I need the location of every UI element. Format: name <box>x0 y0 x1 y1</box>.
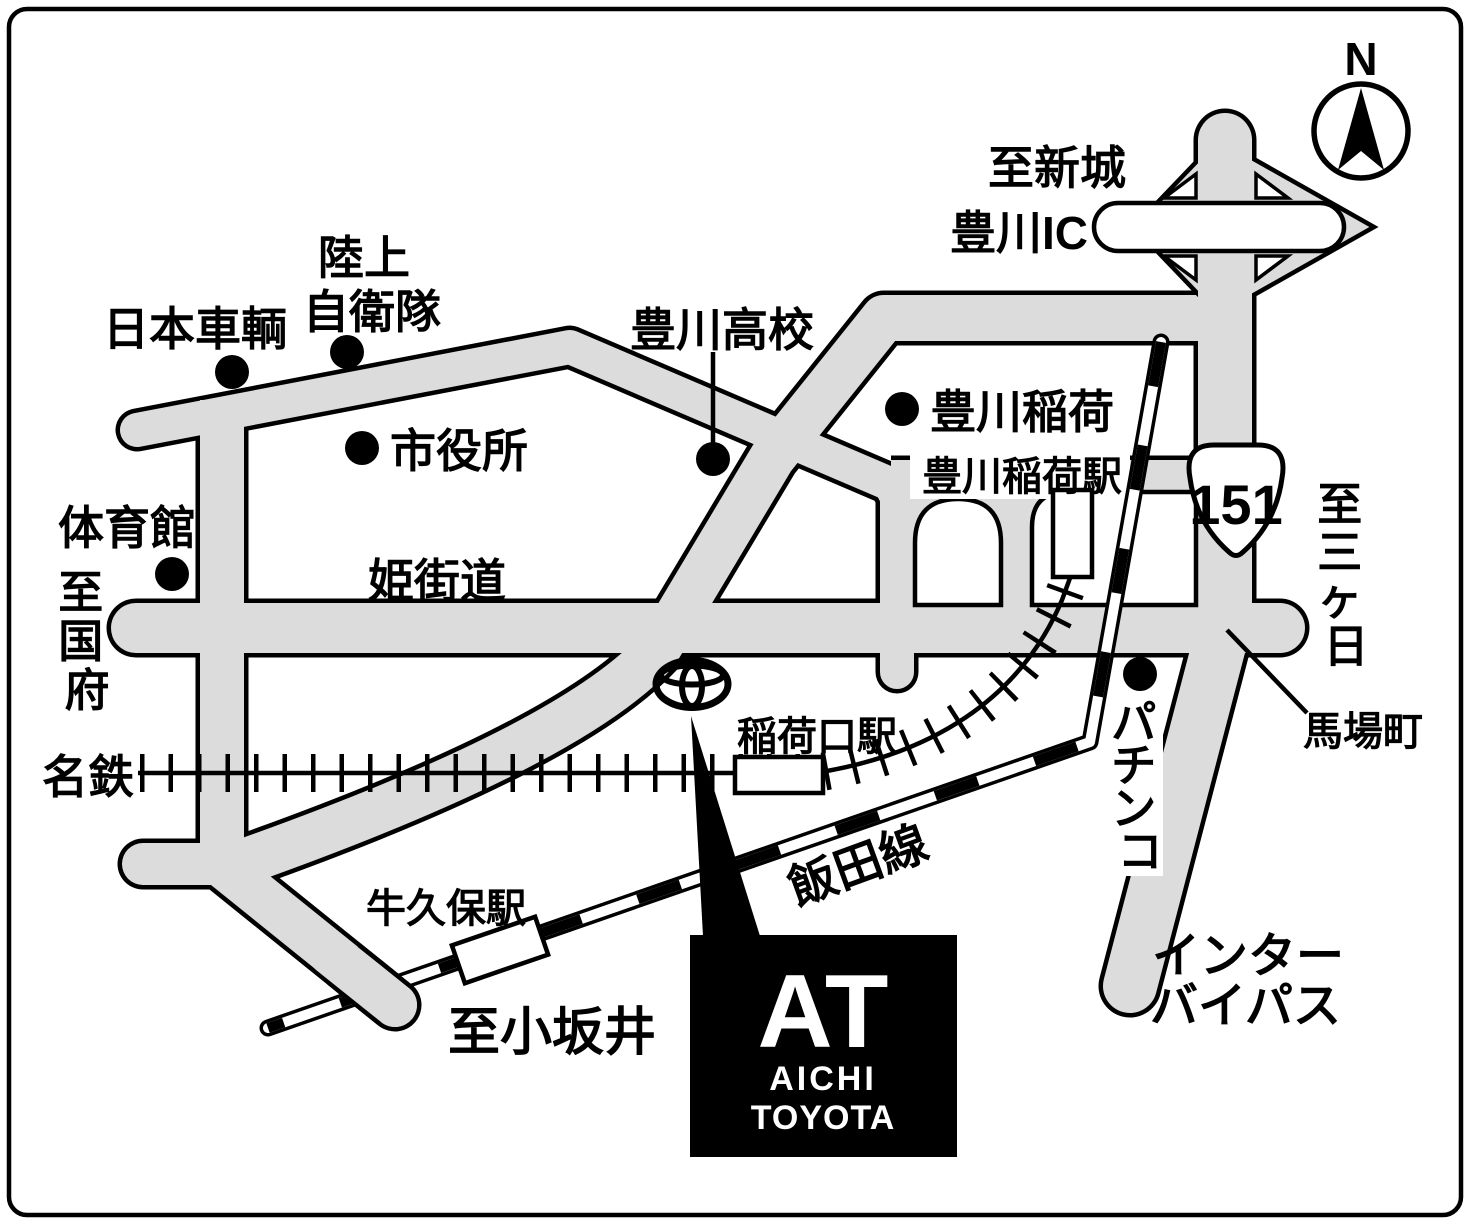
dealer-name-line1: AICHI <box>769 1060 877 1098</box>
label-to-kokufu: 至 国 府 <box>58 567 116 716</box>
station-toyokawa-inari <box>1053 490 1092 577</box>
label-ushikubo-station: 牛久保駅 <box>366 887 526 931</box>
label-to-mikkabi: 至 三 ヶ 日 <box>1317 479 1375 672</box>
label-toyokawa-inari-station: 豊川稲荷駅 <box>922 455 1122 499</box>
label-inter-bypass-line2: バイパス <box>1150 980 1341 1033</box>
route-badge-number: 151 <box>1189 473 1282 536</box>
poi-dot-toyokawa-koko <box>696 442 730 476</box>
label-toyokawa-koko: 豊川高校 <box>630 304 814 356</box>
dealer-monogram: AT <box>758 954 889 1070</box>
label-taiikukan: 体育館 <box>58 502 196 554</box>
label-toyokawa-ic: 豊川IC <box>950 207 1088 259</box>
label-hime-kaido: 姫街道 <box>368 555 506 607</box>
label-rikujo-line1: 陸上 <box>318 232 410 284</box>
label-inariguchi-station: 稲荷口駅 <box>737 715 897 759</box>
label-pachinko: パ チ ン コ <box>1111 697 1169 877</box>
label-baba-cho: 馬場町 <box>1303 710 1423 754</box>
poi-dot-pachinko <box>1123 657 1157 691</box>
poi-dot-taiikukan <box>155 557 189 591</box>
dealer-logo-box: AT AICHI TOYOTA <box>690 935 957 1157</box>
poi-dot-shiyakusho <box>345 431 379 465</box>
label-to-shinshiro: 至新城 <box>988 142 1126 194</box>
label-inter-bypass-line1: インター <box>1152 930 1344 983</box>
compass-north-label: N <box>1344 33 1377 85</box>
poi-dot-nippon-sharyo <box>215 355 249 389</box>
station-inariguchi <box>735 757 823 793</box>
label-to-kozakai: 至小坂井 <box>448 1004 656 1062</box>
label-shiyakusho: 市役所 <box>390 425 528 477</box>
label-nippon-sharyo: 日本車輌 <box>103 303 287 355</box>
poi-dot-toyokawa-inari <box>885 392 919 426</box>
dealer-name-line2: TOYOTA <box>751 1099 896 1137</box>
shrine-arch-cutout <box>915 499 1001 605</box>
label-meitetsu: 名鉄 <box>42 751 134 803</box>
access-map: 151 AT AICHI TOYOTA N 至新城 豊川IC 至 三 ヶ 日 <box>0 0 1470 1224</box>
label-toyokawa-inari: 豊川稲荷 <box>930 386 1114 438</box>
label-rikujo-line2: 自衛隊 <box>303 286 441 338</box>
interchange-overpass <box>1094 203 1344 251</box>
poi-dot-jieitai <box>330 335 364 369</box>
